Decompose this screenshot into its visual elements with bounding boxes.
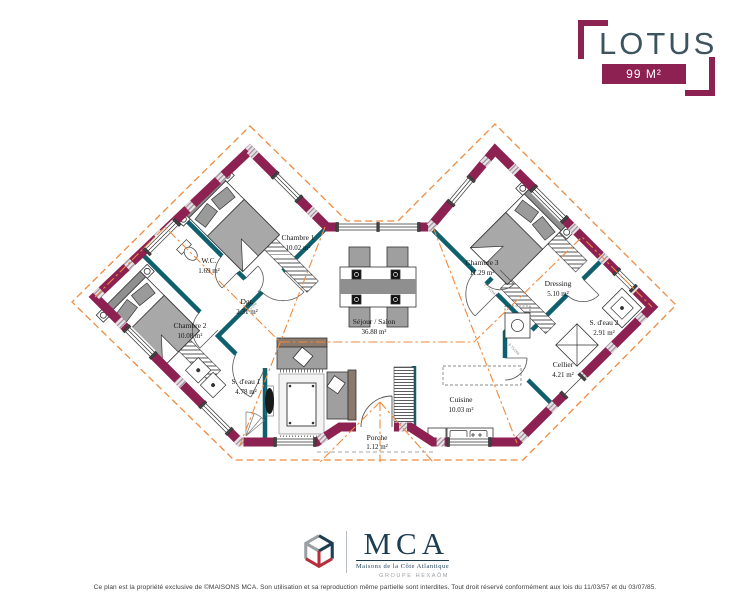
room-label-porche: Porche1.12 m² (366, 433, 388, 451)
mca-logo-block: MCA Maisons de la Côte Atlantique GROUPE… (0, 529, 750, 579)
mca-hexcube-icon (301, 529, 337, 573)
mca-tagline: Maisons de la Côte Atlantique (356, 560, 449, 570)
mca-group-name: GROUPE HEXAÔM (379, 573, 449, 579)
mca-wordmark: MCA (363, 529, 449, 559)
copyright-text: Ce plan est la propriété exclusive de ©M… (0, 584, 750, 591)
armchair (327, 370, 356, 420)
floor-plan: Chambre 110.02 m² W.C.1.69 m² Dgt.2.31 m… (0, 0, 750, 600)
logo-divider (346, 531, 347, 573)
rug (279, 371, 324, 437)
entry-cupboard (394, 367, 414, 428)
sofa (277, 338, 327, 369)
page: LOTUS 99 M² (0, 0, 750, 600)
